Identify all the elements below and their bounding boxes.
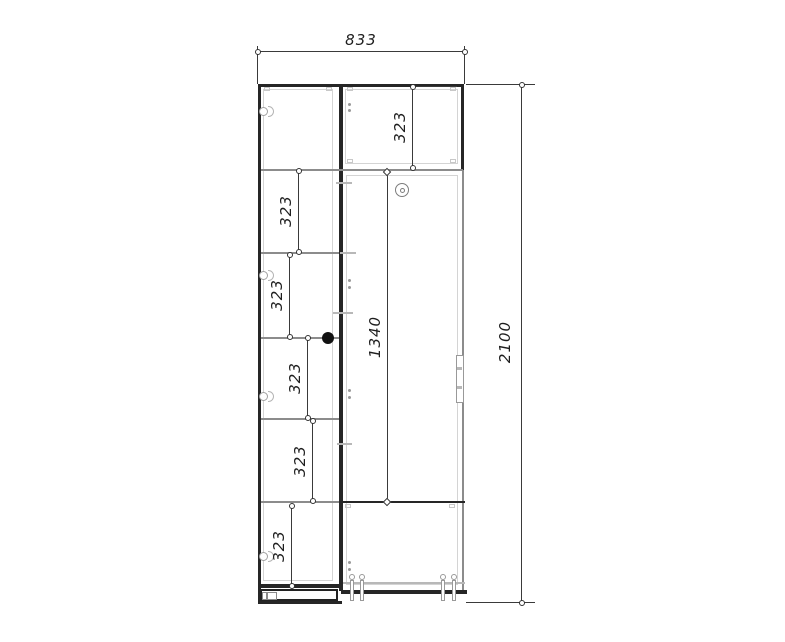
left-bottom-edge (258, 601, 342, 604)
dimension-text-shelf-spacing: 323 (268, 263, 286, 327)
right-mid-shelf-line (341, 501, 465, 503)
dimension-text-overall-height: 2100 (496, 310, 514, 374)
door-knob-icon (322, 332, 334, 344)
right-door-outline (346, 175, 458, 585)
dimension-text-open-section: 1340 (366, 305, 384, 369)
cabinet-left-edge (258, 84, 261, 603)
left-foot-icon (262, 592, 277, 600)
dimension-text-shelf-spacing: 323 (286, 346, 304, 410)
shelf-line (261, 501, 339, 503)
shelf-line (261, 418, 339, 420)
dimension-text-flap-height: 323 (391, 95, 409, 159)
center-divider-panel (339, 85, 343, 591)
shelf-line (261, 169, 463, 171)
dimension-text-shelf-spacing: 323 (291, 429, 309, 493)
technical-drawing-canvas: 833 2100 323 1340 323 323 (0, 0, 785, 642)
dimension-text-overall-width: 833 (331, 31, 391, 49)
dimension-text-shelf-spacing: 323 (277, 179, 295, 243)
left-bottom-panel (258, 584, 342, 588)
cabinet-right-edge-top (461, 84, 464, 170)
dimension-text-shelf-spacing: 323 (270, 514, 288, 578)
